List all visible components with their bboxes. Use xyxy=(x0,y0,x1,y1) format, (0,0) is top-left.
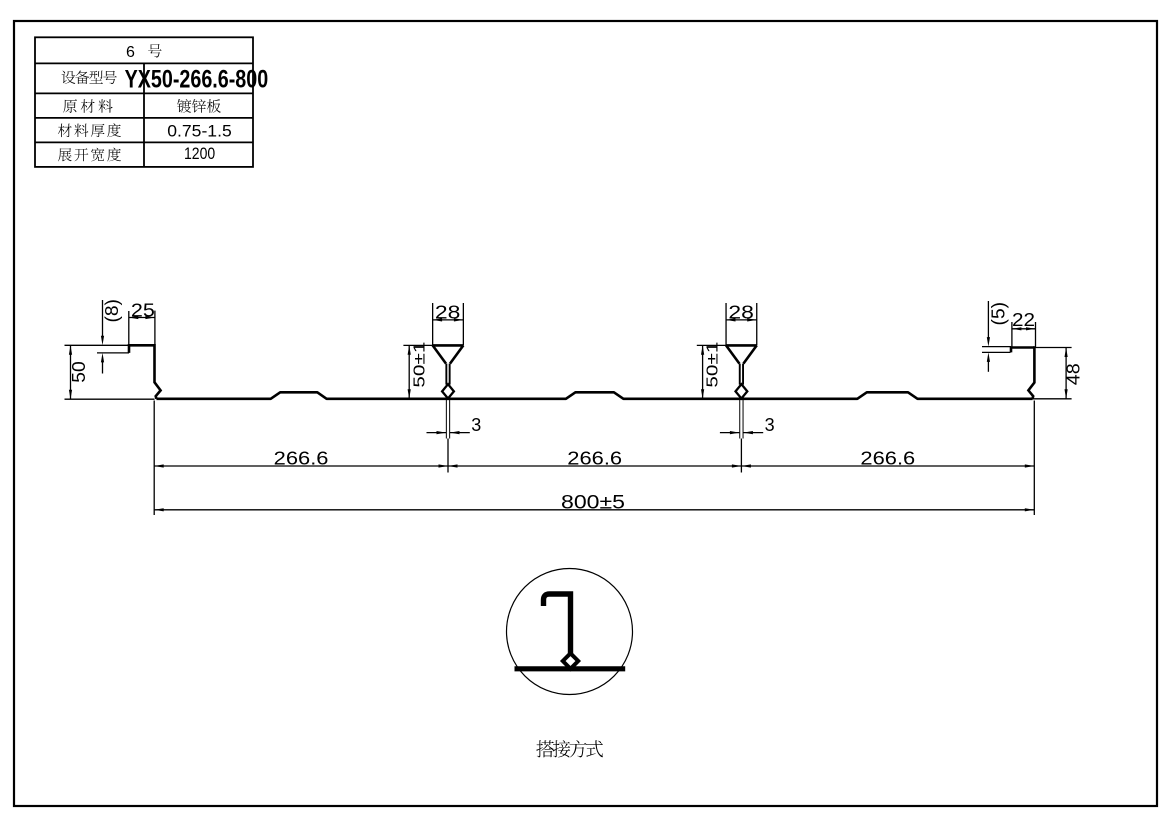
svg-text:28: 28 xyxy=(435,303,461,323)
svg-text:(8): (8) xyxy=(102,299,122,323)
svg-text:22: 22 xyxy=(1012,310,1035,330)
svg-text:0.75-1.5: 0.75-1.5 xyxy=(167,122,232,141)
svg-text:266.6: 266.6 xyxy=(860,449,915,469)
svg-text:800±5: 800±5 xyxy=(561,492,625,514)
svg-text:266.6: 266.6 xyxy=(567,449,622,469)
svg-text:48: 48 xyxy=(1064,363,1084,385)
svg-text:(5): (5) xyxy=(988,302,1008,326)
svg-text:28: 28 xyxy=(728,303,754,323)
svg-text:YX50-266.6-800: YX50-266.6-800 xyxy=(125,66,269,94)
svg-text:3: 3 xyxy=(765,415,775,435)
svg-text:50±1: 50±1 xyxy=(705,342,722,388)
svg-text:50±1: 50±1 xyxy=(411,342,428,388)
svg-text:6: 6 xyxy=(126,44,135,61)
svg-text:266.6: 266.6 xyxy=(274,449,329,469)
svg-text:3: 3 xyxy=(471,415,481,435)
svg-text:50: 50 xyxy=(69,361,89,383)
svg-text:1200: 1200 xyxy=(184,144,215,163)
svg-text:25: 25 xyxy=(131,301,155,321)
